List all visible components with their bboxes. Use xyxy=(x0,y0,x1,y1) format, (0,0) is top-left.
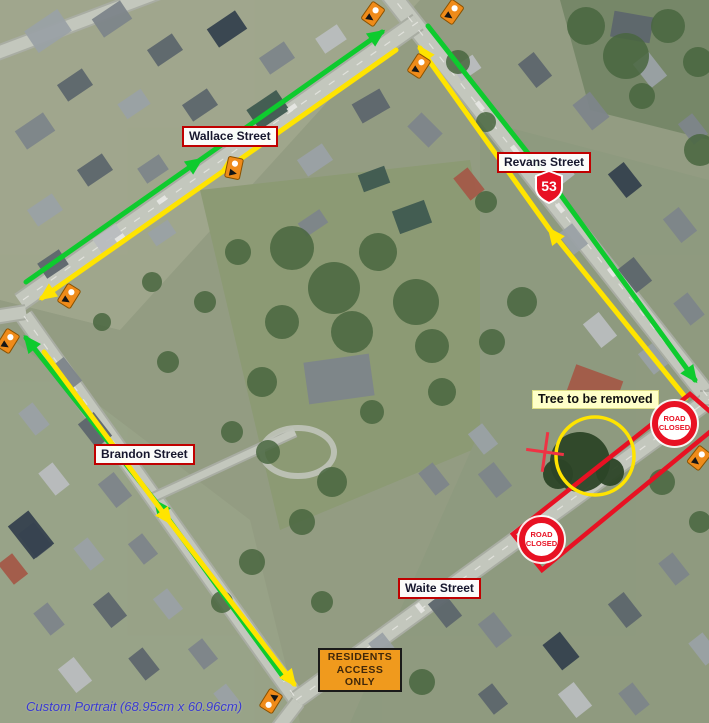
road-closed-line2: CLOSED xyxy=(526,540,557,549)
roadwork-sign-icon xyxy=(0,328,20,354)
road-closed-circle-sign-icon: ROAD CLOSED xyxy=(652,401,697,446)
residents-line: ACCESS xyxy=(337,664,384,677)
yellow-circle-highlight xyxy=(556,417,634,495)
detour-arrow-revans-yellow xyxy=(420,48,686,398)
detour-arrow-brandon-yellow xyxy=(44,352,294,684)
roadwork-sign-icon xyxy=(361,1,385,27)
roadwork-sign-markers xyxy=(0,0,709,714)
detour-arrows xyxy=(26,26,695,684)
roadwork-sign-icon xyxy=(440,0,464,25)
tree-removal-note: Tree to be removed xyxy=(532,390,659,409)
detour-arrow-brandon-green xyxy=(26,338,284,678)
detour-arrow-wallace-green xyxy=(26,32,382,282)
detour-arrow-wallace-yellow xyxy=(42,50,396,298)
residents-line: RESIDENTS xyxy=(328,651,393,664)
road-closed-line2: CLOSED xyxy=(659,424,690,433)
plan-overlay xyxy=(0,0,709,723)
road-closed-circle-sign-icon: ROAD CLOSED xyxy=(519,517,564,562)
street-label-wallace: Wallace Street xyxy=(182,126,278,147)
roadwork-sign-icon xyxy=(224,156,243,180)
street-label-brandon: Brandon Street xyxy=(94,444,195,465)
residents-line: ONLY xyxy=(345,676,375,689)
print-size-note: Custom Portrait (68.95cm x 60.96cm) xyxy=(26,699,242,714)
traffic-management-map: Wallace Street Revans Street 53 Brandon … xyxy=(0,0,709,723)
street-label-waite: Waite Street xyxy=(398,578,481,599)
highway-number: 53 xyxy=(541,178,557,194)
roadwork-sign-icon xyxy=(259,688,283,714)
state-highway-shield-icon: 53 xyxy=(534,170,564,204)
residents-access-sign: RESIDENTS ACCESS ONLY xyxy=(318,648,402,692)
